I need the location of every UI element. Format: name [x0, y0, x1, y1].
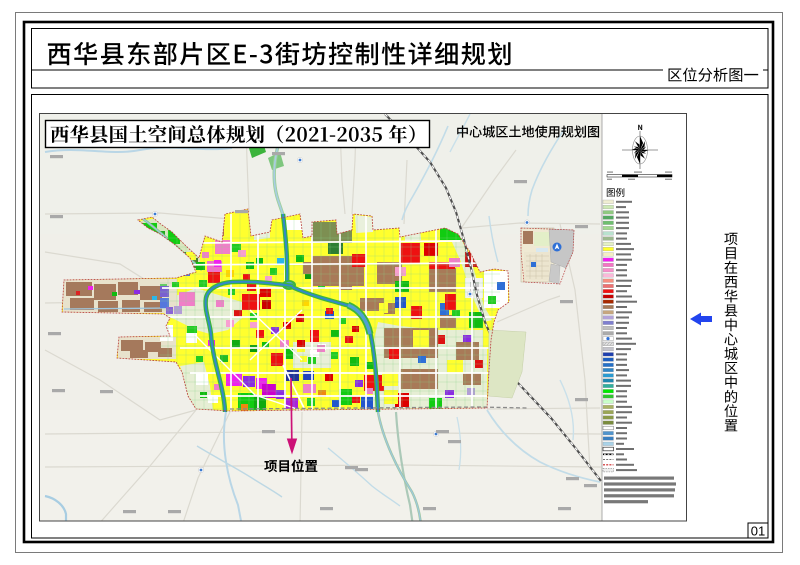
svg-text:01: 01	[751, 524, 765, 539]
